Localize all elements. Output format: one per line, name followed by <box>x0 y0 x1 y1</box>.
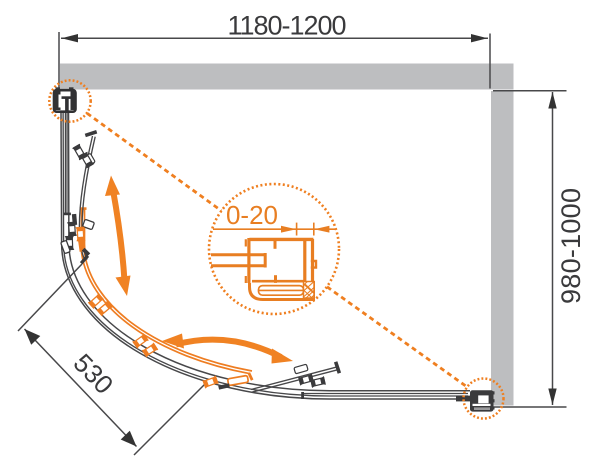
svg-text:0-20: 0-20 <box>226 200 278 230</box>
svg-text:980-1000: 980-1000 <box>556 188 586 304</box>
svg-text:530: 530 <box>68 348 120 400</box>
svg-text:1180-1200: 1180-1200 <box>228 11 347 41</box>
